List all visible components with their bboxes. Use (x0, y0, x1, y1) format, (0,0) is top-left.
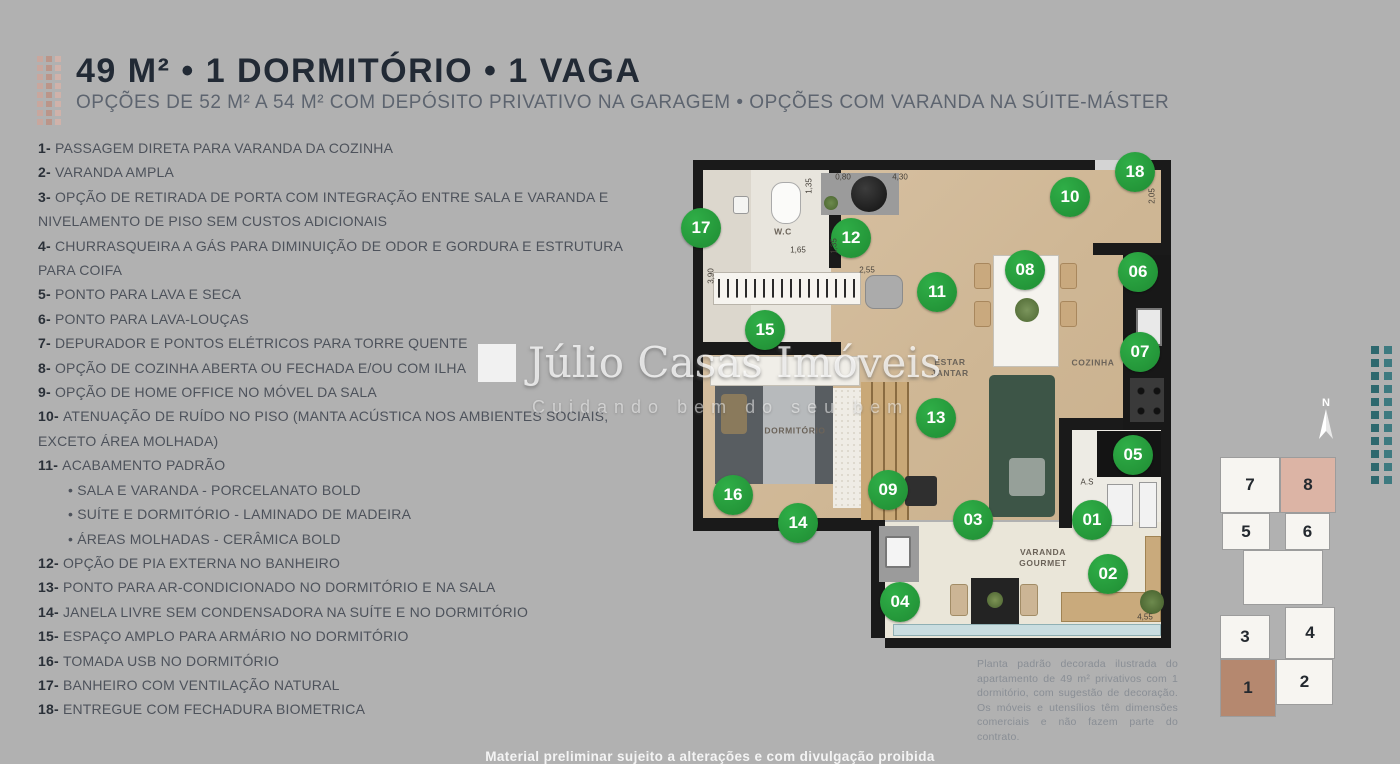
wall-kitchen-top (1093, 243, 1161, 255)
feature-item: 16- TOMADA USB NO DORMITÓRIO (38, 649, 658, 673)
feature-list: 1- PASSAGEM DIRETA PARA VARANDA DA COZIN… (38, 136, 658, 722)
bed-pillows (721, 394, 747, 434)
plan-marker-09: 09 (868, 470, 908, 510)
keyplan-unit-7: 7 (1220, 457, 1280, 513)
measurement-label: 4,30 (892, 173, 908, 182)
decorative-dot (55, 74, 61, 80)
decorative-dot (1384, 359, 1392, 367)
decorative-dot (37, 83, 43, 89)
page-title: 49 M² • 1 DORMITÓRIO • 1 VAGA (76, 52, 641, 91)
balcony-chair (950, 584, 968, 616)
room-label: VARANDA GOURMET (1019, 547, 1067, 569)
keyplan-unit-2: 2 (1276, 659, 1333, 705)
toilet (771, 182, 801, 224)
keyplan-unit-4: 4 (1285, 607, 1335, 659)
feature-item: 11- ACABAMENTO PADRÃO (38, 453, 658, 477)
decorative-dot (37, 56, 43, 62)
plan-marker-18: 18 (1115, 152, 1155, 192)
decorative-dot (46, 101, 52, 107)
decorative-dot (46, 110, 52, 116)
decorative-dot (46, 74, 52, 80)
brochure-page: { "header": { "title": "49 M² • 1 DORMIT… (0, 0, 1400, 762)
feature-item: 14- JANELA LIVRE SEM CONDENSADORA NA SUÍ… (38, 600, 658, 624)
keyplan-unit-1: 1 (1220, 659, 1276, 717)
desk-chair (905, 476, 937, 506)
decorative-dot (55, 83, 61, 89)
measurement-label: 3,90 (707, 268, 716, 284)
feature-item: 17- BANHEIRO COM VENTILAÇÃO NATURAL (38, 673, 658, 697)
feature-sub-item: • ÁREAS MOLHADAS - CERÂMICA BOLD (38, 527, 658, 551)
decorative-dot (55, 56, 61, 62)
decorative-dot (1384, 411, 1392, 419)
room-label: COZINHA (1072, 358, 1115, 369)
decorative-dot (1384, 372, 1392, 380)
feature-item: 7- DEPURADOR E PONTOS ELÉTRICOS PARA TOR… (38, 331, 658, 355)
decorative-dot (55, 65, 61, 71)
dining-chair (1060, 263, 1077, 289)
plan-marker-16: 16 (713, 475, 753, 515)
north-arrow-icon: N (1309, 397, 1343, 449)
keyplan-unit-5: 5 (1222, 513, 1270, 550)
plan-marker-03: 03 (953, 500, 993, 540)
table-plant (1015, 298, 1039, 322)
decorative-dot (37, 65, 43, 71)
plan-marker-02: 02 (1088, 554, 1128, 594)
wall-service-left (1059, 418, 1072, 528)
feature-item: 1- PASSAGEM DIRETA PARA VARANDA DA COZIN… (38, 136, 658, 160)
decorative-dot (46, 119, 52, 125)
plan-marker-17: 17 (681, 208, 721, 248)
room-label: ESTAR JANTAR (931, 357, 968, 379)
decorative-dot (1371, 463, 1379, 471)
feature-item: 2- VARANDA AMPLA (38, 160, 658, 184)
decorative-dot (46, 65, 52, 71)
plant-decor (824, 196, 838, 210)
wall-bottom (885, 638, 1171, 648)
feature-item: 4- CHURRASQUEIRA A GÁS PARA DIMINUIÇÃO D… (38, 234, 658, 283)
decorative-dot (46, 83, 52, 89)
salmon-dot-grid (37, 56, 61, 125)
decorative-dot (55, 101, 61, 107)
plan-marker-05: 05 (1113, 435, 1153, 475)
balcony-table (971, 578, 1019, 624)
decorative-dot (1371, 398, 1379, 406)
decorative-dot (37, 119, 43, 125)
plan-disclaimer: Planta padrão decorada ilustrada do apar… (977, 657, 1178, 745)
page-subtitle: OPÇÕES DE 52 M² A 54 M² COM DEPÓSITO PRI… (76, 92, 1169, 114)
decorative-dot (1384, 398, 1392, 406)
keyplan-unit-6: 6 (1285, 513, 1330, 550)
room-label: DORMITÓRIO (764, 426, 825, 437)
feature-sub-item: • SALA E VARANDA - PORCELANATO BOLD (38, 478, 658, 502)
plan-marker-14: 14 (778, 503, 818, 543)
feature-item: 12- OPÇÃO DE PIA EXTERNA NO BANHEIRO (38, 551, 658, 575)
balcony-washer (885, 536, 911, 568)
teal-dot-grid (1371, 346, 1392, 484)
decorative-dot (1384, 450, 1392, 458)
decorative-dot (1384, 424, 1392, 432)
feature-item: 10- ATENUAÇÃO DE RUÍDO NO PISO (MANTA AC… (38, 404, 658, 453)
decorative-dot (46, 92, 52, 98)
decorative-dot (1384, 346, 1392, 354)
decorative-dot (1371, 424, 1379, 432)
keyplan-unit-3: 3 (1220, 615, 1270, 659)
decorative-dot (55, 92, 61, 98)
glass-railing (893, 624, 1161, 636)
keyplan-core (1243, 550, 1323, 605)
measurement-label: 2,05 (1148, 188, 1157, 204)
cooktop (1130, 378, 1164, 422)
decorative-dot (1371, 385, 1379, 393)
feature-item: 18- ENTREGUE COM FECHADURA BIOMETRICA (38, 697, 658, 721)
decorative-dot (1384, 463, 1392, 471)
decorative-dot (1384, 476, 1392, 484)
decorative-dot (1371, 372, 1379, 380)
plan-marker-08: 08 (1005, 250, 1045, 290)
decorative-dot (1371, 359, 1379, 367)
plan-marker-07: 07 (1120, 332, 1160, 372)
wardrobe-closet (713, 272, 861, 305)
decorative-dot (46, 56, 52, 62)
measurement-label: 1,35 (805, 178, 814, 194)
measurement-label: 2,55 (859, 266, 875, 275)
room-label: W.C (774, 227, 792, 238)
bathroom-sink (733, 196, 749, 214)
feature-item: 9- OPÇÃO DE HOME OFFICE NO MÓVEL DA SALA (38, 380, 658, 404)
decorative-dot (55, 119, 61, 125)
measurement-label: 1,35 (830, 238, 839, 254)
decorative-dot (1384, 385, 1392, 393)
feature-sub-item: • SUÍTE E DORMITÓRIO - LAMINADO DE MADEI… (38, 502, 658, 526)
measurement-label: 0,80 (835, 173, 851, 182)
feature-item: 3- OPÇÃO DE RETIRADA DE PORTA COM INTEGR… (38, 185, 658, 234)
armchair (865, 275, 903, 309)
balcony-sideboard (1145, 536, 1161, 594)
decorative-dot (1371, 411, 1379, 419)
plan-marker-13: 13 (916, 398, 956, 438)
sofa-pillow (1009, 458, 1045, 496)
balcony-plant (1140, 590, 1164, 614)
feature-item: 15- ESPAÇO AMPLO PARA ARMÁRIO NO DORMITÓ… (38, 624, 658, 648)
dining-chair (974, 301, 991, 327)
balcony-chair (1020, 584, 1038, 616)
dryer (1139, 482, 1157, 528)
decorative-dot (1371, 450, 1379, 458)
bed-headboard (710, 356, 860, 386)
measurement-label: 1,65 (790, 246, 806, 255)
keyplan-unit-8: 8 (1280, 457, 1336, 513)
plan-marker-06: 06 (1118, 252, 1158, 292)
plan-marker-15: 15 (745, 310, 785, 350)
plan-marker-04: 04 (880, 582, 920, 622)
decorative-dot (37, 92, 43, 98)
feature-item: 5- PONTO PARA LAVA E SECA (38, 282, 658, 306)
dining-chair (1060, 301, 1077, 327)
north-label: N (1322, 397, 1330, 409)
decorative-dot (37, 101, 43, 107)
measurement-label: A.S (1081, 478, 1094, 487)
plan-marker-01: 01 (1072, 500, 1112, 540)
decorative-dot (1384, 437, 1392, 445)
decorative-dot (1371, 476, 1379, 484)
building-keyplan: N 78563412 (1213, 393, 1347, 729)
decorative-dot (55, 110, 61, 116)
measurement-label: 4,55 (1137, 613, 1153, 622)
decorative-dot (1371, 437, 1379, 445)
decorative-dot (37, 110, 43, 116)
feature-item: 13- PONTO PARA AR-CONDICIONADO NO DORMIT… (38, 575, 658, 599)
feature-item: 8- OPÇÃO DE COZINHA ABERTA OU FECHADA E/… (38, 356, 658, 380)
feature-item: 6- PONTO PARA LAVA-LOUÇAS (38, 307, 658, 331)
floor-plan: 010203040506070809101112131415161718W.CE… (693, 160, 1171, 652)
plan-marker-11: 11 (917, 272, 957, 312)
decorative-dot (1371, 346, 1379, 354)
decorative-dot (37, 74, 43, 80)
plan-marker-10: 10 (1050, 177, 1090, 217)
dining-chair (974, 263, 991, 289)
